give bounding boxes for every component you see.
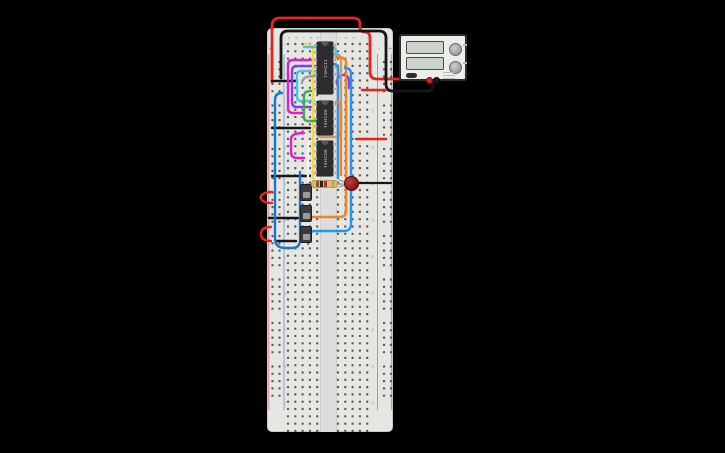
switch-knob[interactable]	[303, 192, 310, 198]
switch-knob[interactable]	[303, 234, 310, 240]
svg-text:b: b	[294, 37, 298, 39]
svg-text:1: 1	[283, 44, 287, 46]
chip-pins-right	[333, 103, 336, 133]
chip-pins-left	[314, 103, 317, 133]
svg-text:35: 35	[283, 291, 287, 295]
svg-text:40: 40	[283, 328, 287, 332]
svg-text:5: 5	[371, 73, 375, 75]
switch-knob[interactable]	[303, 213, 310, 219]
svg-text:f: f	[337, 37, 341, 39]
svg-text:15: 15	[371, 145, 375, 149]
slide-switch-3[interactable]	[300, 226, 312, 243]
svg-text:40: 40	[371, 328, 375, 332]
voltage-knob[interactable]	[449, 43, 462, 56]
svg-text:10: 10	[283, 109, 287, 113]
svg-text:-: -	[282, 46, 284, 52]
current-display	[406, 57, 444, 70]
svg-text:1: 1	[371, 44, 375, 46]
resistor-band-red	[324, 181, 327, 187]
svg-text:a: a	[287, 37, 291, 40]
svg-text:h: h	[352, 37, 356, 39]
svg-text:45: 45	[371, 364, 375, 368]
resistor-band-brown	[316, 181, 319, 187]
brand-marks	[443, 72, 455, 79]
chip-pins-right	[333, 44, 336, 92]
svg-text:-: -	[378, 46, 380, 52]
led[interactable]	[344, 176, 359, 191]
svg-text:g: g	[344, 37, 348, 39]
svg-text:25: 25	[371, 218, 375, 222]
chip-label: 74HC86	[323, 109, 328, 128]
power-supply[interactable]	[399, 34, 467, 81]
svg-text:30: 30	[283, 255, 287, 259]
svg-text:15: 15	[283, 145, 287, 149]
svg-text:e: e	[316, 37, 320, 39]
resistor[interactable]	[311, 180, 338, 188]
chip-pins-left	[314, 143, 317, 174]
chip-pins-left	[314, 44, 317, 92]
voltage-display	[406, 41, 444, 54]
svg-text:10: 10	[371, 109, 375, 113]
resistor-band-black	[320, 181, 323, 187]
chip-pins-right	[333, 143, 336, 174]
chip-notch	[322, 101, 329, 105]
resistor-band-gold	[332, 181, 335, 187]
svg-text:c: c	[302, 37, 306, 39]
svg-text:25: 25	[283, 218, 287, 222]
circuit-canvas: +--+abcdefghij11551010151520202525303035…	[0, 0, 725, 453]
chip-74hc11[interactable]: 74HC11	[317, 42, 333, 94]
chip-label: 74HC11	[323, 59, 328, 78]
positive-terminal[interactable]	[426, 77, 433, 84]
chip-74hc08[interactable]: 74HC08	[317, 141, 333, 176]
slide-switch-2[interactable]	[300, 205, 312, 222]
svg-text:50: 50	[283, 401, 287, 405]
svg-text:35: 35	[371, 291, 375, 295]
svg-text:20: 20	[283, 182, 287, 186]
slide-switch-1[interactable]	[300, 184, 312, 201]
knob-label-marks	[463, 62, 467, 64]
svg-text:5: 5	[283, 73, 287, 75]
svg-text:d: d	[309, 37, 313, 39]
svg-text:+: +	[269, 46, 272, 52]
svg-text:+: +	[389, 46, 392, 52]
knob-label-marks	[463, 44, 467, 46]
svg-text:45: 45	[283, 364, 287, 368]
chip-label: 74HC08	[323, 149, 328, 168]
power-toggle[interactable]	[406, 73, 417, 78]
chip-74hc86[interactable]: 74HC86	[317, 101, 333, 135]
chip-notch	[322, 141, 329, 145]
svg-text:i: i	[359, 38, 363, 39]
negative-terminal[interactable]	[433, 77, 440, 84]
svg-text:50: 50	[371, 401, 375, 405]
chip-notch	[322, 42, 329, 46]
svg-text:20: 20	[371, 182, 375, 186]
svg-text:j: j	[366, 37, 370, 39]
svg-text:30: 30	[371, 255, 375, 259]
